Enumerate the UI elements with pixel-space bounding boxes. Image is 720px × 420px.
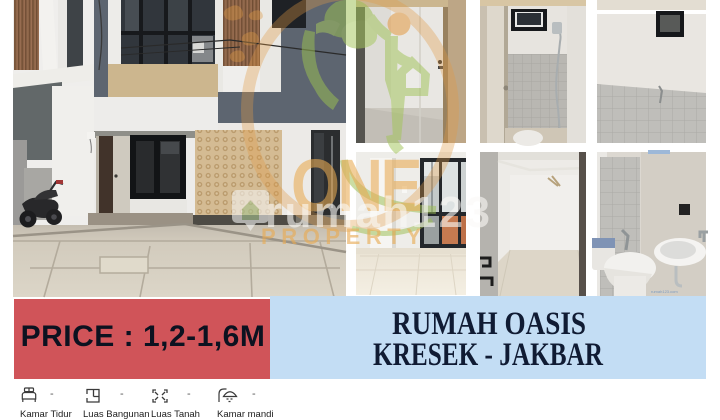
svg-text:-: - (120, 388, 124, 400)
svg-text:-: - (50, 388, 54, 400)
svg-text:-: - (187, 388, 191, 400)
svg-text:Luas Tanah: Luas Tanah (151, 409, 200, 420)
svg-text:PRICE : 1,2-1,6M: PRICE : 1,2-1,6M (21, 320, 266, 353)
svg-text:Kamar mandi: Kamar mandi (217, 409, 274, 420)
svg-text:Kamar Tidur: Kamar Tidur (20, 409, 72, 420)
svg-text:KRESEK - JAKBAR: KRESEK - JAKBAR (373, 337, 604, 373)
svg-text:PROPERTY: PROPERTY (261, 224, 427, 249)
svg-text:-: - (252, 388, 256, 400)
svg-text:Luas Bangunan: Luas Bangunan (83, 409, 150, 420)
